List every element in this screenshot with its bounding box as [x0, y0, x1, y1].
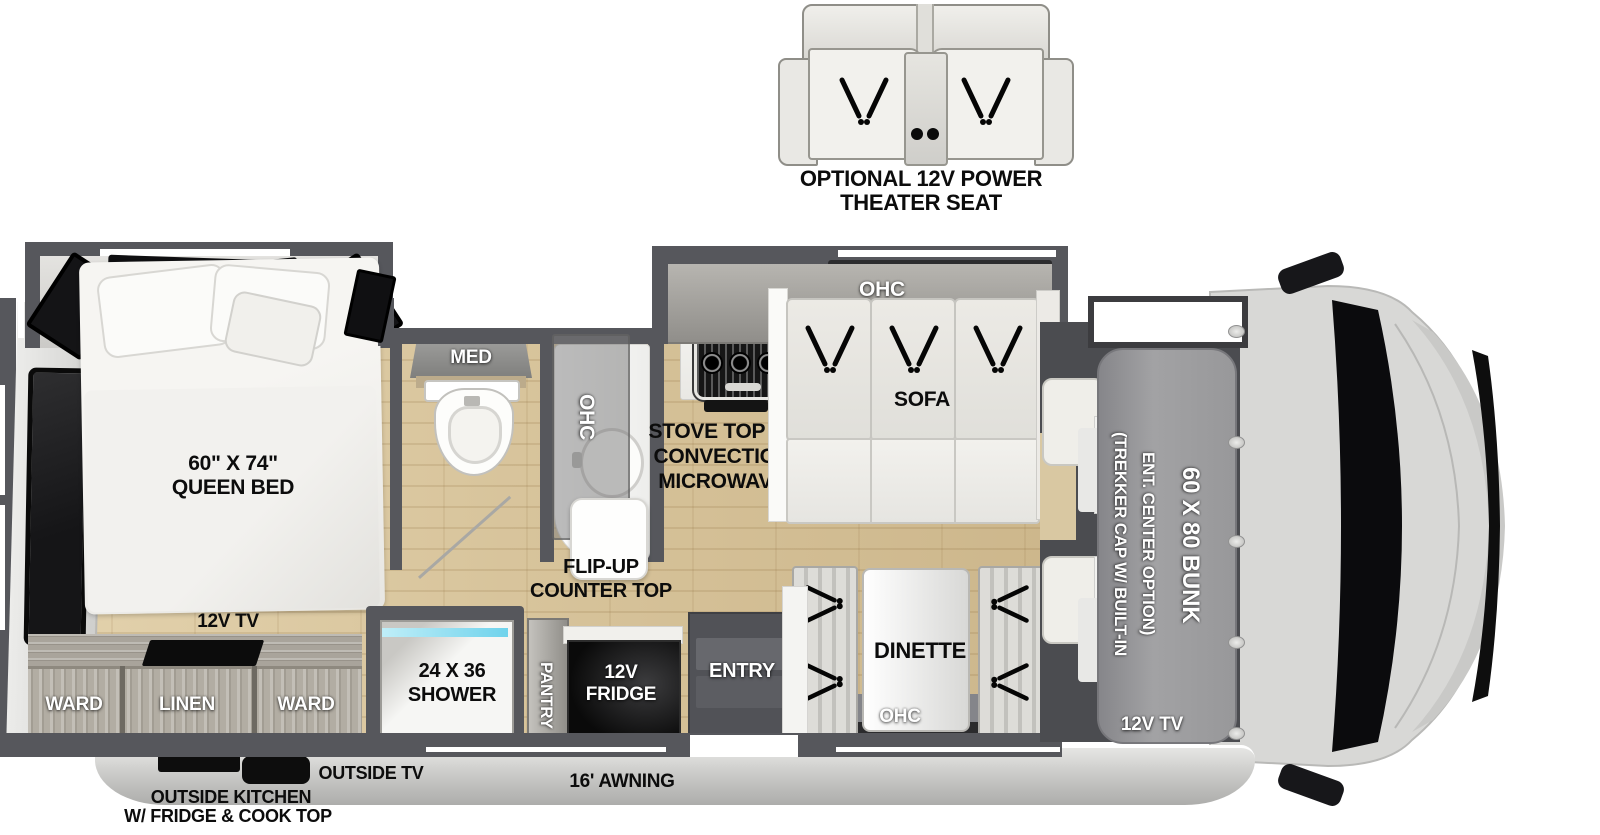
cupholder-icon — [911, 128, 923, 140]
ward-right-label: WARD — [277, 694, 334, 716]
bottom-window-slit — [426, 747, 666, 752]
seat-stitch-icon — [988, 580, 1032, 628]
linen-label: LINEN — [159, 694, 215, 716]
rivet-icon — [1228, 535, 1245, 548]
seat-stitch-icon — [798, 324, 862, 376]
ward-left-label: WARD — [45, 694, 102, 716]
queen-bed-label-line1: 60" X 74" — [188, 452, 278, 476]
sofa-back-cushion — [954, 298, 1040, 442]
cupholder-icon — [927, 128, 939, 140]
outside-tv-label: OUTSIDE TV — [318, 763, 423, 784]
sofa-slide-window-slit — [838, 250, 1056, 257]
bedroom-slide-slit-left — [18, 268, 24, 338]
flip-up-label-line2: COUNTER TOP — [530, 580, 672, 603]
queen-bed-label-line2: QUEEN BED — [172, 476, 294, 500]
pantry-label: PANTRY — [536, 648, 556, 743]
med-cabinet-label: MED — [450, 347, 492, 369]
rear-window-slit-2 — [0, 505, 5, 630]
wall-bath-left — [390, 344, 402, 570]
rivet-icon — [1228, 636, 1245, 649]
awning-label: 16' AWNING — [569, 771, 674, 793]
bottom-wall — [0, 733, 1062, 757]
sofa-seat-divider — [870, 440, 872, 522]
entry-door-gap — [690, 735, 798, 757]
theater-seat-graphic — [778, 4, 1070, 164]
oven-vent-strip — [704, 400, 768, 412]
sofa-back-cushion — [786, 298, 872, 442]
theater-seat-label-line1: OPTIONAL 12V POWER — [800, 166, 1042, 192]
side-mirror-bottom — [1276, 761, 1347, 808]
entry-label: ENTRY — [709, 660, 775, 683]
entry-pillar — [782, 586, 808, 736]
rear-window-slit-1 — [0, 385, 5, 495]
rivet-icon — [1228, 727, 1245, 740]
sofa-back-cushion — [870, 298, 956, 442]
rear-window — [24, 367, 91, 646]
bottom-window-slit — [836, 747, 1060, 752]
outside-kitchen-label-line2: W/ FRIDGE & COOK TOP — [124, 806, 332, 827]
bunk-size-label: 60 X 80 BUNK — [1176, 420, 1204, 670]
floorplan-canvas: OUTSIDE TV 16' AWNING OUTSIDE KITCHEN W/… — [0, 0, 1600, 835]
seat-stitch-icon — [966, 324, 1030, 376]
outside-tv-hatch — [242, 756, 310, 784]
bunk-cap-option-line2: ENT. CENTER OPTION) — [1135, 356, 1161, 732]
toilet-flush — [464, 396, 480, 406]
rivet-icon — [1228, 325, 1245, 338]
fridge-label-line1: 12V — [604, 662, 637, 684]
dinette-ohc-label: OHC — [879, 706, 921, 728]
seat-stitch-icon — [882, 324, 946, 376]
dinette-bench-right — [978, 566, 1044, 742]
flip-up-label-line1: FLIP-UP — [563, 556, 639, 579]
rivet-icon — [1228, 436, 1245, 449]
seat-stitch-icon — [954, 76, 1018, 128]
seat-stitch-icon — [802, 658, 846, 706]
theater-seat-console — [904, 52, 948, 166]
seat-stitch-icon — [802, 580, 846, 628]
sofa-left-panel — [768, 288, 788, 522]
fridge-label-line2: FRIDGE — [586, 684, 657, 706]
sofa-seat-front — [786, 438, 1040, 524]
bath-ohc-label: OHC — [574, 372, 598, 462]
bunk-cap-option-line1: (TREKKER CAP W/ BUILT-IN — [1107, 356, 1133, 732]
burner-icon — [729, 352, 751, 374]
sofa-label: SOFA — [894, 388, 950, 412]
seat-stitch-icon — [988, 658, 1032, 706]
cap-front-window — [1088, 296, 1248, 348]
burner-icon — [701, 352, 723, 374]
front-tv-label: 12V TV — [1121, 714, 1183, 736]
dinette-label: DINETTE — [874, 638, 966, 664]
dresser-tv-inset — [142, 640, 264, 666]
seat-stitch-icon — [832, 76, 896, 128]
bunk-cap-option-label: (TREKKER CAP W/ BUILT-IN ENT. CENTER OPT… — [1106, 356, 1162, 732]
stove-knob-strip — [725, 383, 761, 391]
shower-label-line2: SHOWER — [408, 684, 496, 707]
shower-label-line1: 24 X 36 — [419, 660, 486, 683]
sofa-seat-divider — [954, 440, 956, 522]
toilet-bowl-inner — [448, 406, 502, 464]
bedroom-tv-label: 12V TV — [197, 611, 259, 633]
outside-kitchen-label-line1: OUTSIDE KITCHEN — [151, 787, 312, 808]
stove-label-line3: MICROWAVE — [658, 470, 786, 494]
shower-glass — [382, 628, 508, 637]
sofa-slide-frame-left — [652, 246, 668, 336]
theater-seat-label-line2: THEATER SEAT — [840, 190, 1002, 216]
